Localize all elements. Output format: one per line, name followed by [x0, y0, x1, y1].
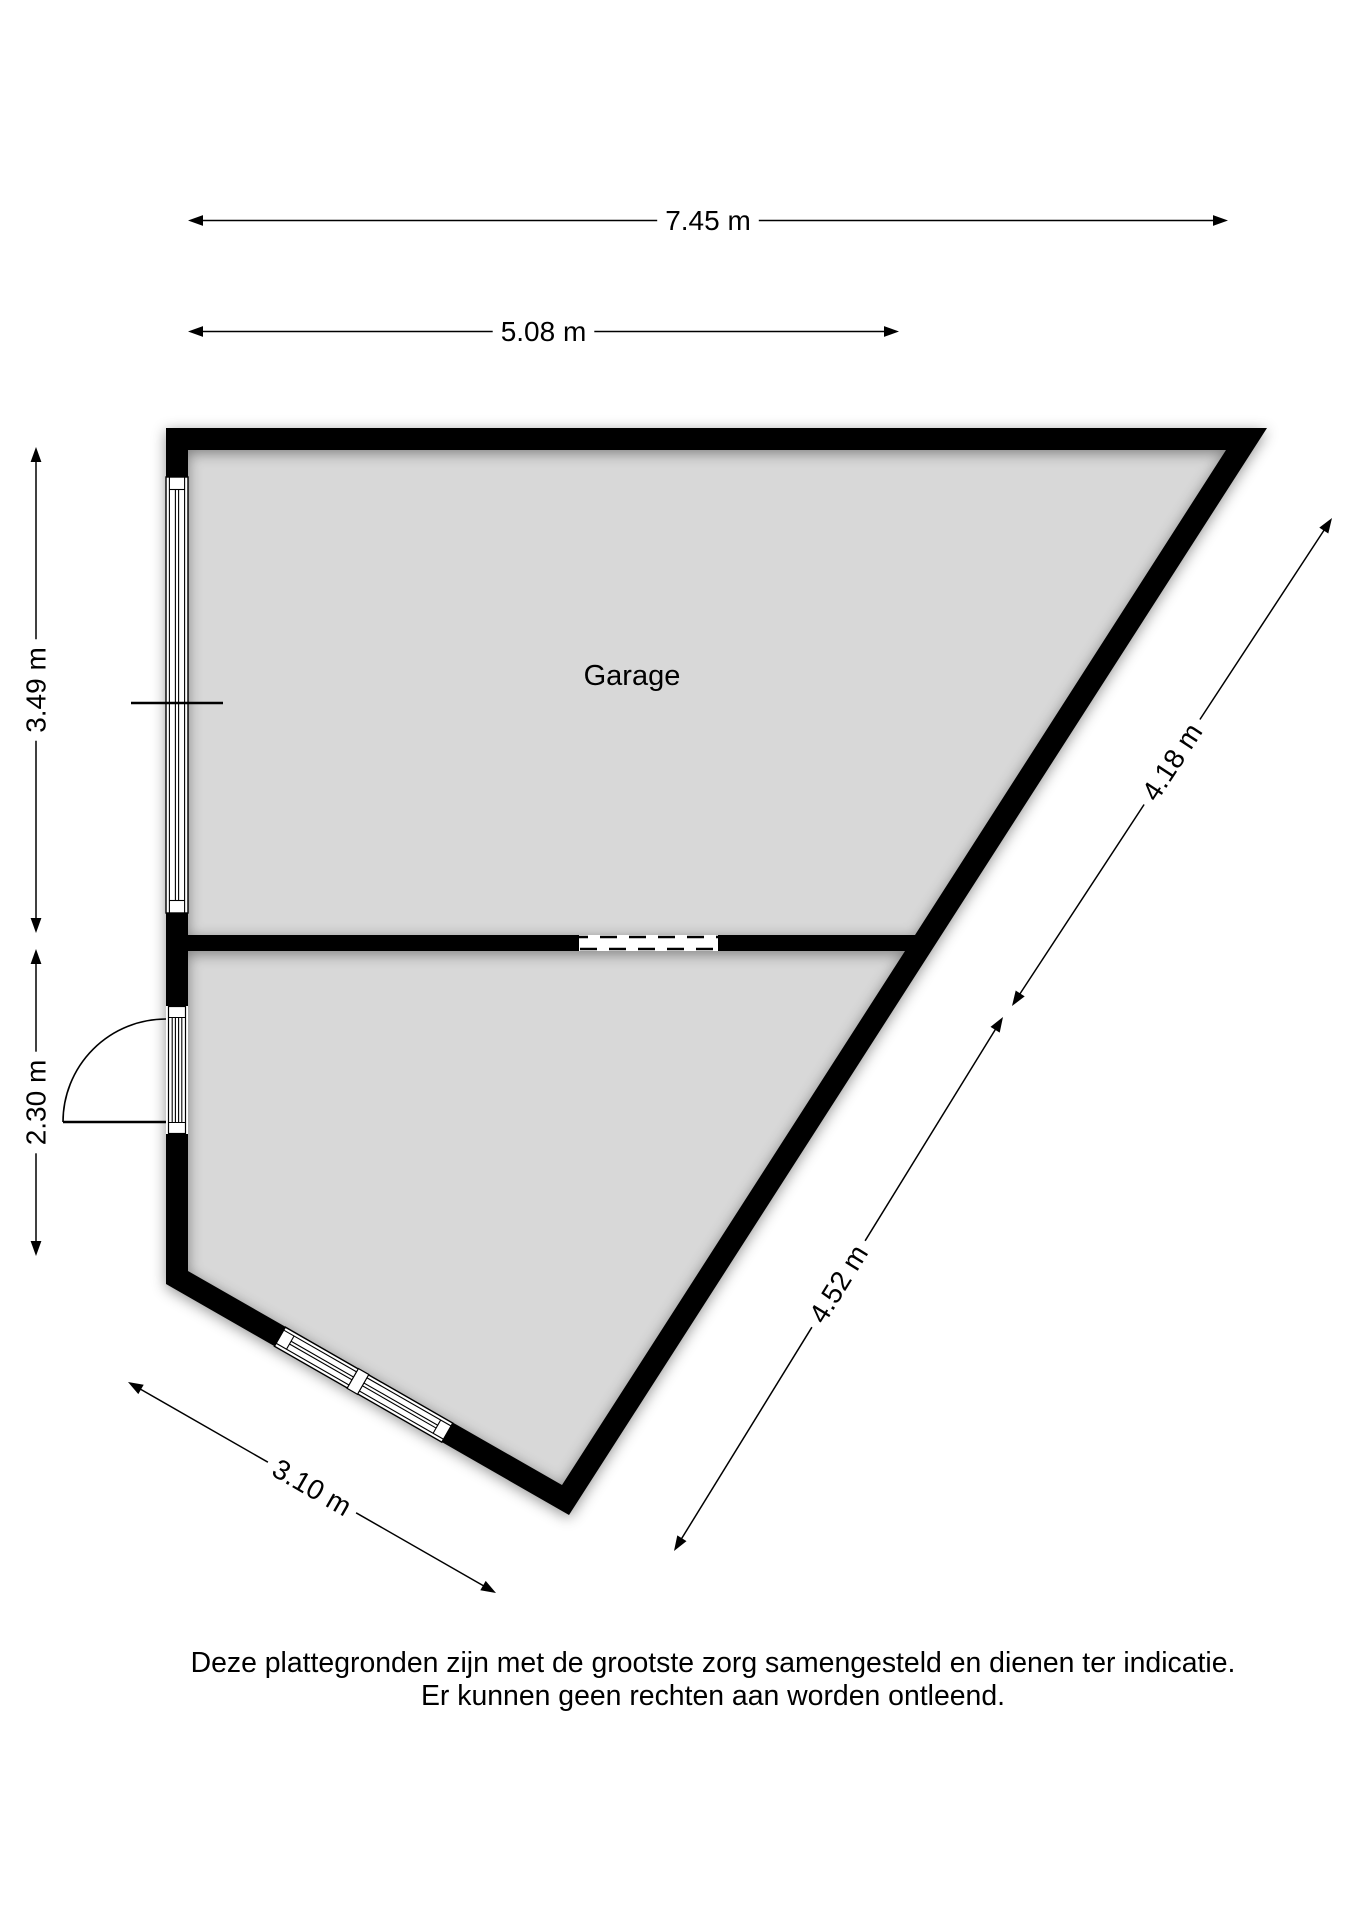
svg-text:3.49 m: 3.49 m	[21, 647, 52, 733]
svg-text:5.08 m: 5.08 m	[501, 316, 587, 347]
svg-text:Garage: Garage	[584, 660, 681, 692]
svg-text:3.10 m: 3.10 m	[267, 1453, 357, 1522]
svg-text:4.52 m: 4.52 m	[803, 1239, 874, 1328]
svg-text:7.45 m: 7.45 m	[665, 205, 751, 236]
svg-text:2.30 m: 2.30 m	[21, 1060, 52, 1146]
svg-text:4.18 m: 4.18 m	[1136, 718, 1209, 807]
svg-text:Deze plattegronden zijn met de: Deze plattegronden zijn met de grootste …	[191, 1647, 1236, 1679]
svg-text:Er kunnen geen rechten aan wor: Er kunnen geen rechten aan worden ontlee…	[421, 1680, 1005, 1712]
